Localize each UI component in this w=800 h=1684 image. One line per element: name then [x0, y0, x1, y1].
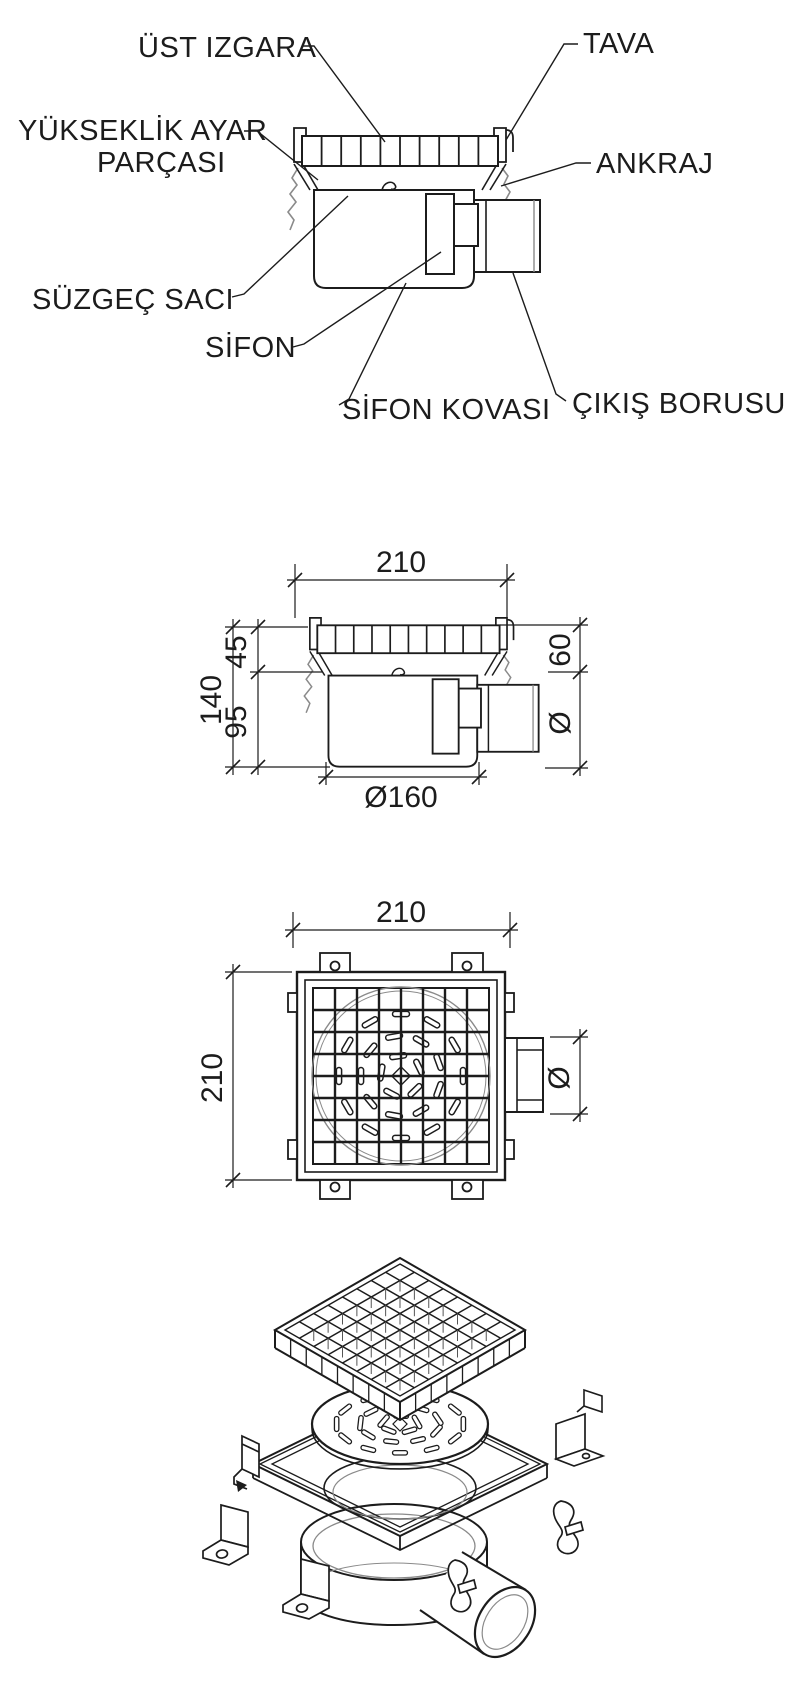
leader-sifon-kovasi	[339, 283, 406, 405]
anchor-left-flag	[234, 1436, 259, 1492]
label-yukseklik-ayar-line1: YÜKSEKLİK AYAR	[18, 114, 267, 147]
dim-side-body-diameter: Ø160	[364, 781, 437, 814]
anchor-right-strip	[554, 1501, 583, 1554]
leader-ankraj	[501, 163, 591, 186]
dim-plan-outlet-diameter: Ø	[543, 1066, 576, 1089]
side-view: 210 45 95 140 Ø160 60 Ø	[195, 546, 588, 814]
plan-outlet-pipe	[505, 1038, 543, 1112]
dim-side-upper-height: 45	[220, 635, 253, 668]
leader-cikis-borusu	[513, 273, 566, 401]
label-suzgec-saci: SÜZGEÇ SACI	[32, 284, 234, 316]
label-yukseklik-ayar-line2: PARÇASI	[97, 147, 226, 179]
dim-side-total-height: 140	[195, 675, 228, 725]
dim-plan-height: 210	[196, 1053, 229, 1103]
drain-technical-drawing: ÜST IZGARA TAVA YÜKSEKLİK AYAR PARÇASI A…	[0, 0, 800, 1684]
anchor-top-right-flag	[577, 1390, 602, 1412]
label-tava: TAVA	[583, 28, 654, 60]
anchor-right-flag	[556, 1414, 603, 1466]
label-ust-izgara: ÜST IZGARA	[138, 32, 317, 64]
cross-section-view: ÜST IZGARA TAVA YÜKSEKLİK AYAR PARÇASI A…	[18, 28, 786, 426]
dim-side-top-width: 210	[376, 546, 426, 579]
dim-side-outlet-offset: 60	[544, 633, 577, 666]
drain-side-drawing	[304, 618, 538, 767]
exploded-top-grate	[275, 1258, 525, 1420]
dim-side-outlet-diameter: Ø	[544, 711, 577, 734]
drain-cross-section-drawing	[288, 128, 540, 288]
label-sifon: SİFON	[205, 331, 296, 364]
technical-drawing-page: ÜST IZGARA TAVA YÜKSEKLİK AYAR PARÇASI A…	[0, 0, 800, 1684]
plan-view: 210 210 Ø	[196, 896, 588, 1199]
anchor-left-bracket	[203, 1505, 248, 1565]
dim-plan-width: 210	[376, 896, 426, 929]
label-ankraj: ANKRAJ	[596, 148, 713, 180]
exploded-view	[203, 1258, 603, 1668]
label-cikis-borusu: ÇIKIŞ BORUSU	[572, 388, 786, 420]
leader-tava	[506, 44, 578, 140]
label-sifon-kovasi: SİFON KOVASI	[342, 393, 551, 426]
anchor-bottom-bracket	[283, 1559, 329, 1619]
